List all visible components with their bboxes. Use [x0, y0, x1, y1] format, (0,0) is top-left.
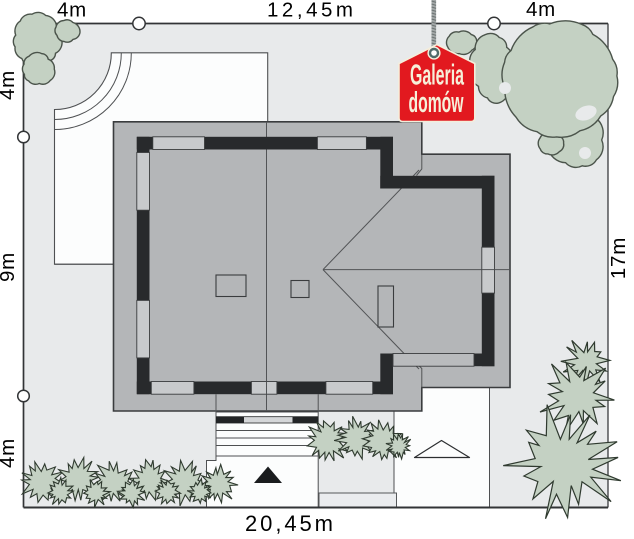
svg-text:17m: 17m: [607, 237, 630, 279]
svg-text:4m: 4m: [526, 0, 556, 21]
svg-text:4m: 4m: [0, 70, 19, 100]
svg-text:9m: 9m: [0, 252, 19, 282]
svg-text:4m: 4m: [0, 438, 19, 468]
svg-text:domów: domów: [409, 87, 464, 119]
svg-text:4m: 4m: [57, 0, 87, 22]
